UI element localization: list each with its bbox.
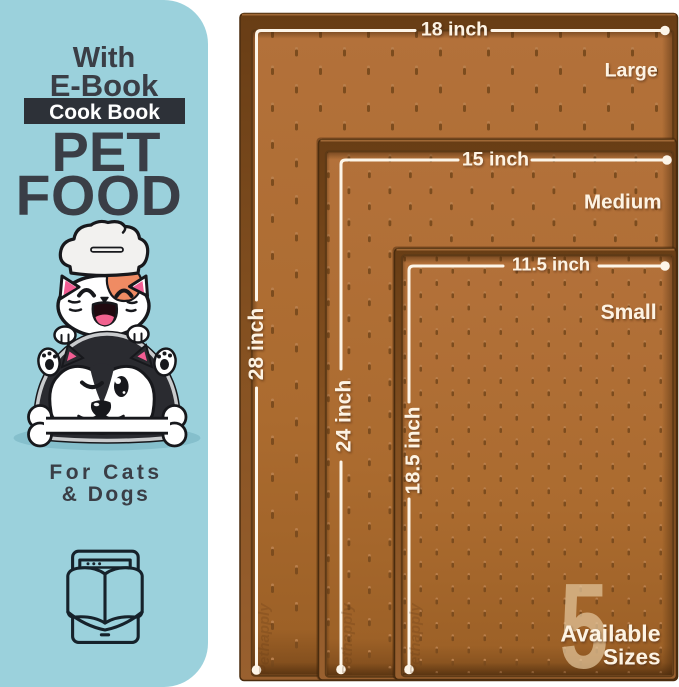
svg-text:28 inch: 28 inch xyxy=(245,308,268,380)
svg-text:Sizes: Sizes xyxy=(603,645,661,670)
svg-text:15 inch: 15 inch xyxy=(462,149,529,171)
svg-text:Medium: Medium xyxy=(584,191,661,214)
svg-text:24 inch: 24 inch xyxy=(333,380,356,452)
svg-text:Small: Small xyxy=(601,301,657,324)
svg-text:18.5 inch: 18.5 inch xyxy=(402,407,425,495)
svg-text:11.5 inch: 11.5 inch xyxy=(512,254,590,275)
svg-text:Large: Large xyxy=(605,60,658,82)
svg-text:Available: Available xyxy=(560,621,660,647)
svg-text:18 inch: 18 inch xyxy=(421,19,488,41)
svg-text:Pethapply: Pethapply xyxy=(407,603,424,675)
svg-text:Pethapply: Pethapply xyxy=(339,603,356,675)
svg-text:Pethapply: Pethapply xyxy=(256,603,273,675)
